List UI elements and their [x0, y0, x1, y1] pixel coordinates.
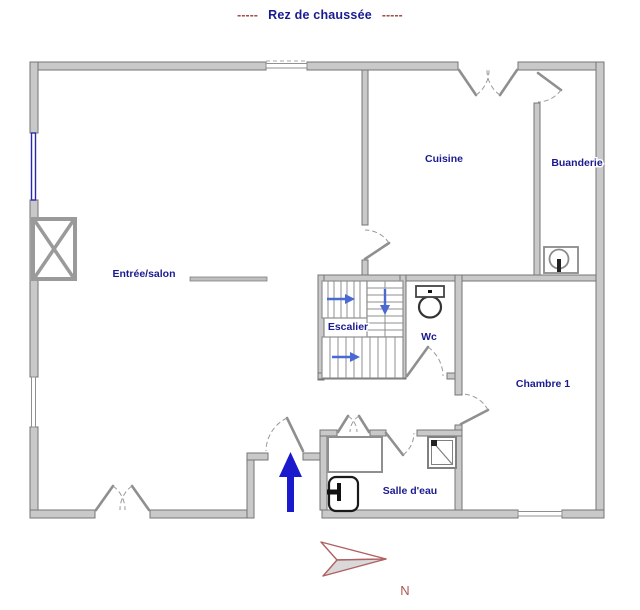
door-closet-bifold: [338, 416, 369, 432]
wall-segment: [150, 510, 250, 518]
sink-icon: [327, 477, 358, 511]
door-buanderie: [538, 73, 561, 102]
wall-segment: [518, 62, 604, 70]
washing-machine-icon: [544, 247, 578, 273]
label-chambre1: Chambre 1: [516, 378, 570, 390]
shower-icon: [428, 437, 456, 468]
salon-beam: [190, 277, 267, 281]
wall-segment: [362, 70, 368, 225]
floor-plan: -----Rez de chaussée-----: [0, 0, 640, 610]
wall-segment: [417, 430, 462, 436]
toilet-icon: [416, 286, 444, 318]
window-bottom-chambre: [518, 512, 562, 517]
walls: [30, 62, 604, 518]
wall-segment: [370, 430, 386, 436]
windows: [32, 61, 563, 516]
window-left-lower: [32, 377, 36, 427]
label-cuisine: Cuisine: [425, 153, 463, 165]
floor-plan-drawing: Entrée/salon Cuisine Buanderie Escalier …: [0, 0, 640, 610]
door-salle-deau: [386, 433, 414, 455]
door-salon-cuisine: [365, 230, 389, 259]
wall-segment: [562, 510, 604, 518]
door-chambre1: [461, 394, 488, 424]
wall-segment: [30, 510, 95, 518]
entry-arrow-icon: [279, 452, 302, 512]
door-entrance: [266, 418, 303, 451]
wall-segment: [534, 103, 540, 277]
wall-segment: [596, 62, 604, 518]
label-wc: Wc: [421, 331, 437, 343]
wall-segment: [320, 430, 337, 436]
label-north: N: [400, 583, 409, 598]
wall-segment: [303, 453, 322, 460]
label-buanderie: Buanderie: [551, 157, 603, 169]
door-wc: [407, 347, 443, 376]
wall-segment: [247, 453, 268, 460]
label-escalier: Escalier: [328, 321, 368, 333]
window-left-upper: [32, 133, 36, 200]
wall-segment: [320, 430, 327, 510]
wall-segment: [455, 275, 462, 395]
window-top: [266, 64, 307, 69]
wall-segment: [30, 62, 266, 70]
wall-segment: [30, 62, 38, 133]
north-arrow-icon: [321, 542, 386, 576]
fireplace-icon: [33, 219, 75, 279]
label-salle-deau: Salle d'eau: [383, 485, 437, 497]
wall-segment: [307, 62, 458, 70]
wall-segment: [30, 427, 38, 518]
closet-icon: [328, 437, 382, 472]
wall-segment: [247, 453, 254, 518]
label-entree-salon: Entrée/salon: [112, 268, 175, 280]
door-cuisine-french: [459, 70, 517, 95]
door-salon-french: [96, 486, 149, 510]
